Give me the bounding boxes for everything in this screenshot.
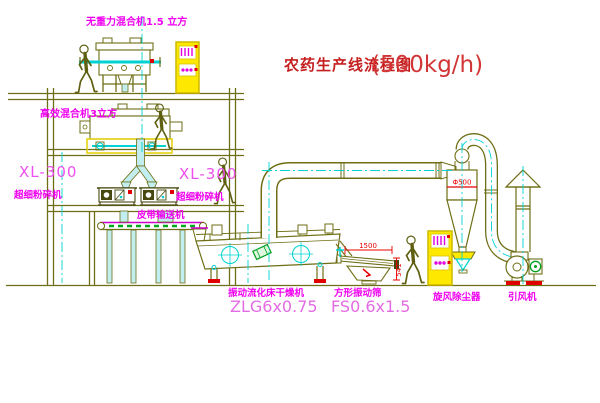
- collector-funnel: [456, 259, 470, 270]
- control-cabinet-1: [176, 42, 199, 93]
- label-mixer-mid: 高效混合机3立方: [40, 107, 117, 120]
- exhaust-duct: [269, 162, 456, 238]
- label-crusher-right: 超细粉碎机: [175, 191, 224, 203]
- vibrating-screen: [336, 246, 400, 284]
- dryer-foot: [317, 266, 323, 279]
- indicator-lights: [434, 261, 445, 264]
- crusher-right: [139, 188, 179, 205]
- crusher-chute: [120, 211, 128, 222]
- dim-screen-height: 541: [395, 263, 403, 276]
- label-fan: 引风机: [508, 291, 537, 303]
- label-belt-conveyor: 皮带输送机: [136, 209, 185, 221]
- mixer-lid: [96, 43, 153, 50]
- drawing-canvas: 农药生产线流程图 (500kg/h) 无重力混合机1.5 立方 高效混合机3立方…: [0, 0, 600, 403]
- dryer-port: [298, 225, 307, 234]
- fan-base-pad: [506, 281, 520, 285]
- label-mixer-top: 无重力混合机1.5 立方: [85, 15, 187, 28]
- dryer-foot: [211, 269, 217, 279]
- mixer-hopper: [118, 75, 132, 84]
- dim-cyclone-diameter: Φ500: [453, 179, 472, 187]
- label-cyclone: 旋风除尘器: [432, 291, 481, 303]
- dim-screen-length: 1500: [359, 242, 377, 250]
- induced-draft-fan: [504, 170, 544, 285]
- belt-conveyor: [98, 211, 207, 283]
- label-screen-model: FS0.6x1.5: [331, 297, 410, 316]
- foot-pad: [208, 279, 220, 283]
- label-dryer-model: ZLG6x0.75: [230, 297, 318, 316]
- person-icon: [403, 236, 425, 283]
- cad-flow-diagram: 农药生产线流程图 (500kg/h) 无重力混合机1.5 立方 高效混合机3立方…: [0, 0, 600, 403]
- control-cabinet-2: [428, 231, 452, 285]
- crusher-inlet: [121, 182, 131, 188]
- foot-pad: [314, 279, 326, 283]
- crusher-left: [97, 188, 137, 205]
- label-crusher-left-model: XL-300: [19, 163, 77, 181]
- dryer-port: [212, 225, 222, 235]
- conveyor-roller: [98, 223, 105, 230]
- dryer-port: [325, 224, 333, 233]
- person-icon: [76, 45, 98, 92]
- fan-scroll: [506, 256, 528, 278]
- title-capacity: (500kg/h): [371, 52, 483, 78]
- collector-pan: [451, 252, 475, 259]
- label-crusher-right-model: XL-300: [179, 165, 237, 183]
- fan-base-pad: [526, 281, 542, 285]
- indicator-lights: [181, 68, 192, 71]
- crusher-inlet: [147, 182, 157, 188]
- label-crusher-left: 超细粉碎机: [13, 189, 62, 201]
